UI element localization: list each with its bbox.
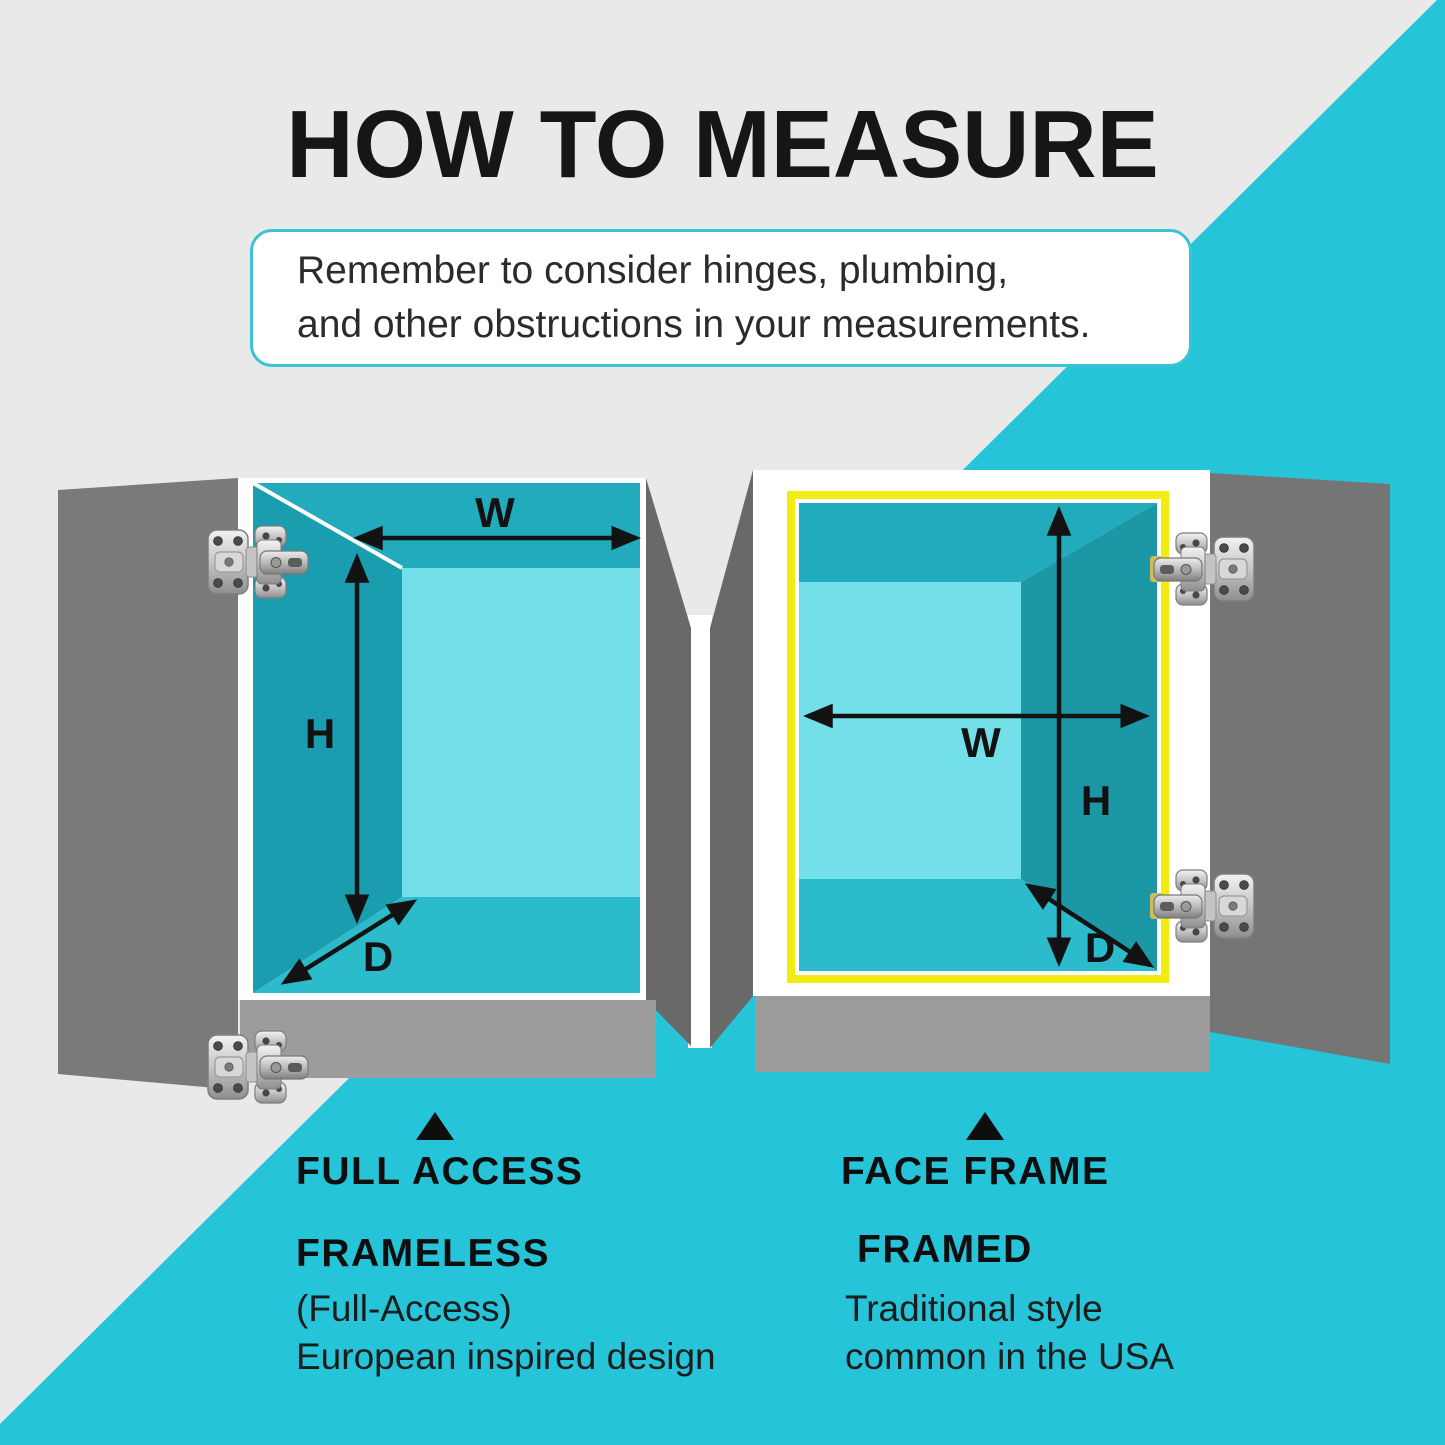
up-triangle-icon (416, 1112, 454, 1140)
frameless-cabinet-graphic: W H D (58, 478, 691, 1103)
left-width-label: W (475, 489, 515, 536)
right-height-label: H (1081, 777, 1111, 824)
page-title: HOW TO MEASURE (22, 90, 1424, 200)
left-cabinet-subheading: FRAMELESS (296, 1232, 550, 1276)
right-cabinet-base (755, 996, 1210, 1072)
face-frame-cabinet-graphic: W H D (710, 470, 1390, 1072)
right-width-label: W (961, 719, 1001, 766)
left-interior-back (402, 568, 640, 897)
right-depth-label: D (1085, 924, 1115, 971)
right-cabinet-side-panel (710, 470, 753, 1048)
right-cabinet-detail-1: Traditional style (845, 1288, 1103, 1330)
left-cabinet-side-panel (646, 478, 691, 1046)
cabinet-gap-strip (688, 615, 712, 1048)
right-cabinet-subheading: FRAMED (857, 1228, 1033, 1272)
left-cabinet-heading: FULL ACCESS (296, 1150, 583, 1194)
note-line-1: Remember to consider hinges, plumbing, (297, 244, 1189, 298)
measure-diagram: W H D W H D (0, 0, 1445, 1445)
right-cabinet-detail-2: common in the USA (845, 1336, 1174, 1378)
left-depth-label: D (363, 933, 393, 980)
left-cabinet-detail-1: (Full-Access) (296, 1288, 512, 1330)
up-triangle-icon (966, 1112, 1004, 1140)
infographic-canvas: W H D W H D (0, 0, 1445, 1445)
left-cabinet-detail-2: European inspired design (296, 1336, 716, 1378)
right-cabinet-heading: FACE FRAME (841, 1150, 1110, 1194)
note-box: Remember to consider hinges, plumbing, a… (250, 229, 1192, 367)
note-line-2: and other obstructions in your measureme… (297, 298, 1189, 352)
left-height-label: H (305, 710, 335, 757)
